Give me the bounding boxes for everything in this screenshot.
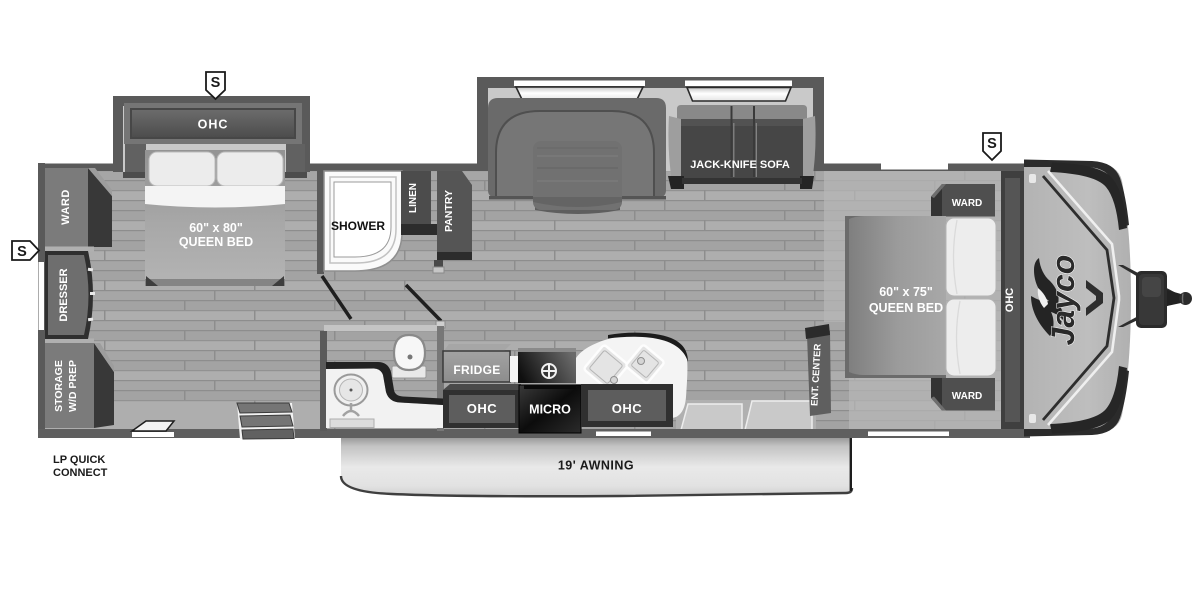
svg-text:CONNECT: CONNECT [53, 467, 108, 479]
svg-text:QUEEN BED: QUEEN BED [179, 235, 253, 249]
svg-text:OHC: OHC [467, 401, 498, 416]
svg-text:SHOWER: SHOWER [331, 219, 385, 233]
svg-text:WARD: WARD [952, 198, 983, 209]
svg-text:OHC: OHC [1004, 288, 1016, 313]
svg-text:STORAGE: STORAGE [53, 360, 65, 412]
svg-text:MICRO: MICRO [529, 403, 571, 417]
svg-text:S: S [17, 244, 27, 260]
svg-text:PANTRY: PANTRY [443, 190, 455, 232]
svg-text:19' AWNING: 19' AWNING [558, 459, 634, 473]
svg-text:OHC: OHC [198, 118, 229, 132]
svg-text:WARD: WARD [60, 189, 72, 225]
svg-text:JACK-KNIFE SOFA: JACK-KNIFE SOFA [690, 159, 790, 171]
svg-text:Jayco: Jayco [1045, 255, 1081, 346]
svg-text:OHC: OHC [612, 401, 643, 416]
svg-text:QUEEN BED: QUEEN BED [869, 301, 943, 315]
svg-text:DRESSER: DRESSER [58, 268, 70, 321]
svg-text:60" x 80": 60" x 80" [189, 221, 243, 235]
svg-text:FRIDGE: FRIDGE [453, 363, 500, 377]
svg-text:LP QUICK: LP QUICK [53, 454, 105, 466]
svg-text:S: S [987, 136, 997, 152]
svg-text:W/D PREP: W/D PREP [67, 360, 79, 412]
svg-text:60" x 75": 60" x 75" [879, 285, 933, 299]
svg-text:S: S [211, 75, 221, 91]
svg-text:LINEN: LINEN [408, 183, 419, 213]
svg-text:WARD: WARD [952, 391, 983, 402]
